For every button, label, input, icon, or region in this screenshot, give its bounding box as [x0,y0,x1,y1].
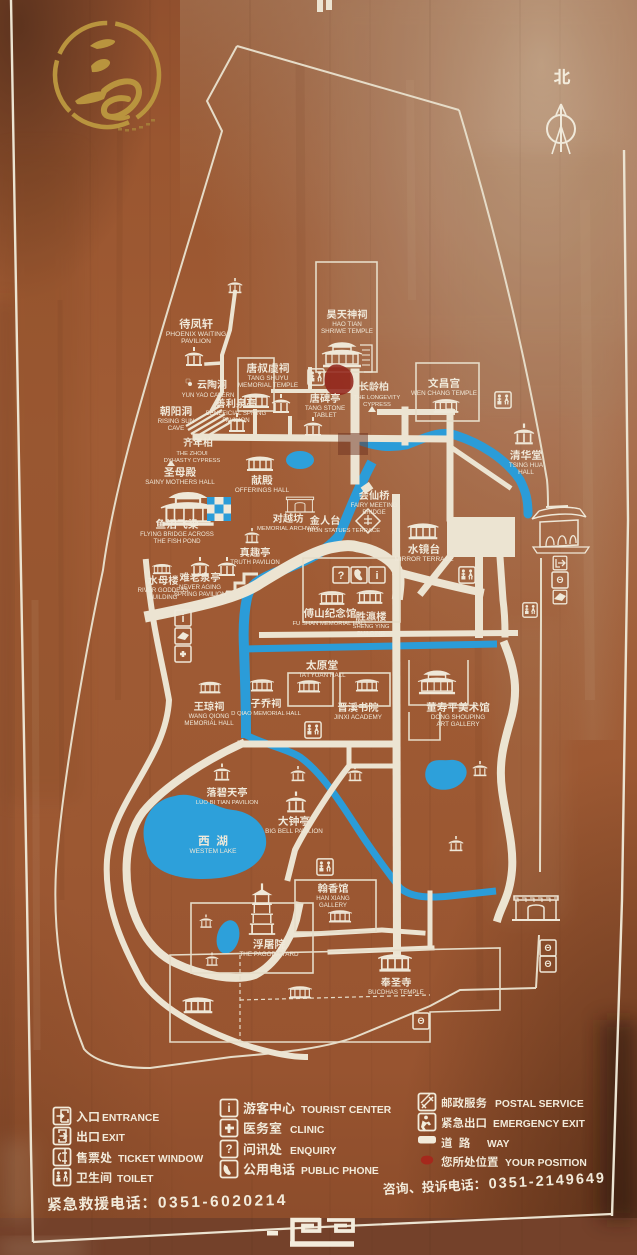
svg-text:YUN YAO CAVERN: YUN YAO CAVERN [182,393,235,399]
svg-text:PAVILION: PAVILION [181,338,211,345]
svg-text:HAO TIAN: HAO TIAN [332,321,362,328]
svg-text:i: i [227,1101,230,1115]
svg-text:PUBLIC PHONE: PUBLIC PHONE [301,1166,379,1177]
svg-text:EMERGENCY EXIT: EMERGENCY EXIT [493,1119,586,1130]
svg-text:WESTEM LAKE: WESTEM LAKE [190,848,238,855]
svg-text:TANG STONE: TANG STONE [305,405,345,412]
svg-text:TRUTH PAVILION: TRUTH PAVILION [230,559,280,566]
svg-text:YOUR POSITION: YOUR POSITION [505,1158,587,1169]
svg-text:THE FISH POND: THE FISH POND [153,538,201,545]
svg-text:OFFERINGS HALL: OFFERINGS HALL [235,487,290,494]
svg-text:BENEFICIAL SPRING: BENEFICIAL SPRING [206,410,267,417]
svg-text:Θ: Θ [556,575,563,585]
svg-text:EXIT: EXIT [102,1133,126,1144]
svg-text:PAVILION: PAVILION [222,417,249,424]
svg-text:ART GALLERY: ART GALLERY [436,721,480,728]
svg-text:PHOENIX WAITING: PHOENIX WAITING [166,331,226,338]
svg-text:ENTRANCE: ENTRANCE [102,1113,159,1124]
svg-text:TSING HUA: TSING HUA [509,462,544,469]
svg-text:MEMORIAL HALL: MEMORIAL HALL [184,720,234,727]
svg-text:THE LONGEVITY: THE LONGEVITY [354,395,401,401]
svg-text:MIRROR TERRACE: MIRROR TERRACE [394,556,454,563]
svg-text:Θ: Θ [417,1016,424,1026]
svg-text:?: ? [338,570,345,582]
svg-text:HALL: HALL [518,469,534,476]
svg-text:MEMORIAL ARCHWAY: MEMORIAL ARCHWAY [257,526,319,532]
svg-text:i: i [375,570,378,582]
svg-text:POSTAL SERVICE: POSTAL SERVICE [495,1099,584,1110]
svg-text:SHRIWE TEMPLE: SHRIWE TEMPLE [321,328,373,335]
svg-text:TOILET: TOILET [117,1174,154,1185]
svg-text:i: i [181,613,184,625]
svg-text:FAIRY MEETING: FAIRY MEETING [351,502,398,509]
svg-text:TICKET WINDOW: TICKET WINDOW [118,1154,204,1165]
svg-text:TOURIST CENTER: TOURIST CENTER [301,1105,392,1116]
svg-text:CAVE: CAVE [168,425,185,432]
svg-text:GALLERY: GALLERY [319,902,347,909]
svg-text:TABLET: TABLET [313,412,336,419]
svg-text:RIVER GODDESS: RIVER GODDESS [138,587,189,594]
svg-text:Θ: Θ [544,943,551,953]
svg-text:BUILDING: BUILDING [357,631,385,637]
svg-text:BIG BELL PAVILION: BIG BELL PAVILION [265,828,323,835]
svg-text:SHENG YING: SHENG YING [353,624,390,630]
svg-text:BUCDHAS TEMPLE: BUCDHAS TEMPLE [368,989,424,996]
svg-text:FLYING BRIDGE ACROSS: FLYING BRIDGE ACROSS [140,531,214,538]
svg-text:0351-6020214: 0351-6020214 [158,1192,288,1212]
svg-text:CYPRESS: CYPRESS [363,402,391,408]
svg-text:Θ: Θ [544,959,551,969]
svg-text:D QIAO MEMORIAL HALL: D QIAO MEMORIAL HALL [231,711,302,717]
svg-text:JINXI ACADEMY: JINXI ACADEMY [334,714,383,721]
svg-text:CLINIC: CLINIC [290,1125,325,1136]
svg-text:LUO BI TIAN PAVILION: LUO BI TIAN PAVILION [196,800,258,806]
svg-text:HAN XIANG: HAN XIANG [316,895,350,902]
svg-text:MEMORIAL TEMPLE: MEMORIAL TEMPLE [238,382,298,389]
svg-text:WAY: WAY [487,1139,510,1150]
svg-text:ENQUIRY: ENQUIRY [290,1146,337,1157]
svg-text:THE PAGODA YARD: THE PAGODA YARD [239,951,299,958]
svg-text:SAINY MOTHERS HALL: SAINY MOTHERS HALL [145,479,215,486]
svg-text:BUILDING: BUILDING [149,594,178,601]
svg-text:WANG QIONG: WANG QIONG [189,713,230,720]
svg-text:THE ZHOUI: THE ZHOUI [176,451,208,457]
svg-text:BRIDGE: BRIDGE [362,509,385,516]
svg-text:WEN CHANG TEMPLE: WEN CHANG TEMPLE [411,390,477,397]
svg-text:TANG SHUYU: TANG SHUYU [248,375,289,382]
svg-text:?: ? [225,1144,232,1156]
svg-text:DONG SHOUPING: DONG SHOUPING [431,714,485,721]
svg-text:TA I YUAN HALL: TA I YUAN HALL [298,672,346,679]
svg-text:RISING SUN: RISING SUN [158,418,195,425]
